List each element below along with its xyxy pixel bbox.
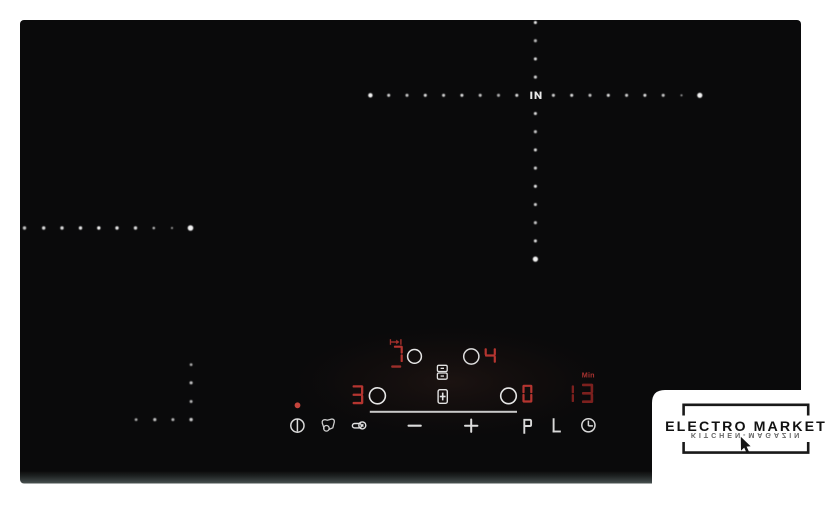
svg-text:Min: Min — [582, 371, 595, 380]
svg-text:KITCHEN-MAGAZIN: KITCHEN-MAGAZIN — [691, 431, 802, 440]
